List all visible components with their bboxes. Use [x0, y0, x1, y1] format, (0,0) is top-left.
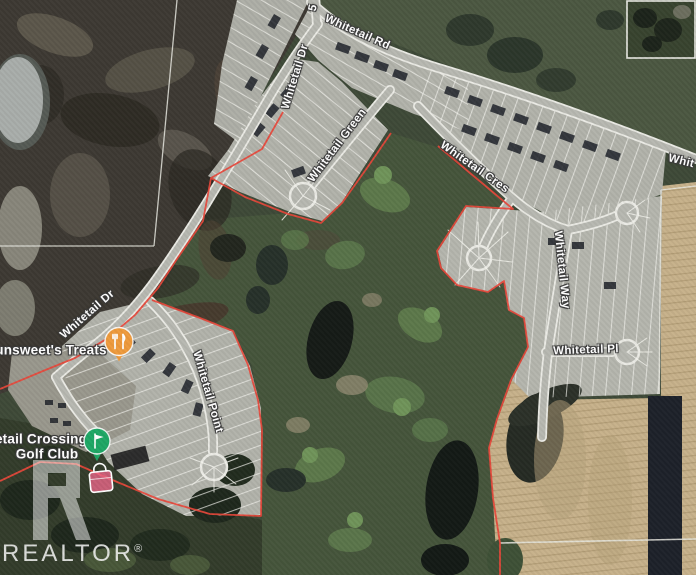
poi-marker-shopping[interactable] — [81, 458, 121, 505]
poi-label-golf-club-line2: Golf Club — [16, 447, 79, 461]
street-label-whitetail-pl: Whitetail Pl — [553, 344, 619, 358]
poi-label-treats: unsweet's Treats — [0, 343, 107, 357]
poi-label-golf-club-line1: etail Crossing — [0, 432, 87, 446]
restaurant-icon — [103, 327, 135, 365]
map-root[interactable]: Whitetail Rd Whitetail Dr 5 Whitetail Gr… — [0, 0, 696, 575]
shopping-bag-icon — [81, 458, 121, 500]
poi-marker-restaurant[interactable] — [103, 327, 135, 370]
